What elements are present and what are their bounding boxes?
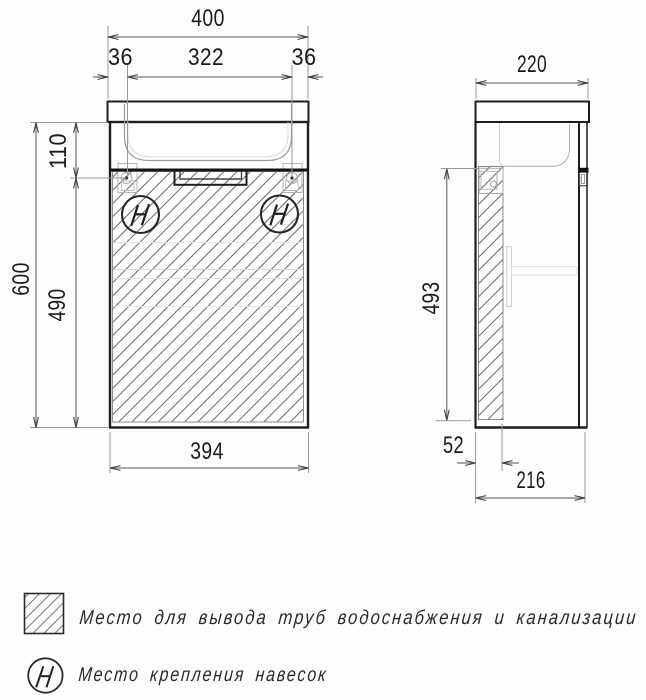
svg-text:394: 394 [190,438,224,465]
svg-text:216: 216 [517,467,546,494]
svg-text:Место крепления навесок: Место крепления навесок [78,664,329,686]
svg-text:Место для вывода труб водоснаб: Место для вывода труб водоснабжения и ка… [79,607,639,629]
svg-text:110: 110 [45,133,72,169]
svg-text:52: 52 [443,432,464,459]
svg-text:490: 490 [44,289,71,322]
svg-text:220: 220 [517,51,547,78]
svg-text:322: 322 [188,44,224,71]
svg-text:600: 600 [8,262,35,296]
svg-text:36: 36 [292,44,317,71]
svg-text:400: 400 [191,5,225,32]
svg-text:493: 493 [418,282,445,315]
svg-text:36: 36 [108,44,133,71]
